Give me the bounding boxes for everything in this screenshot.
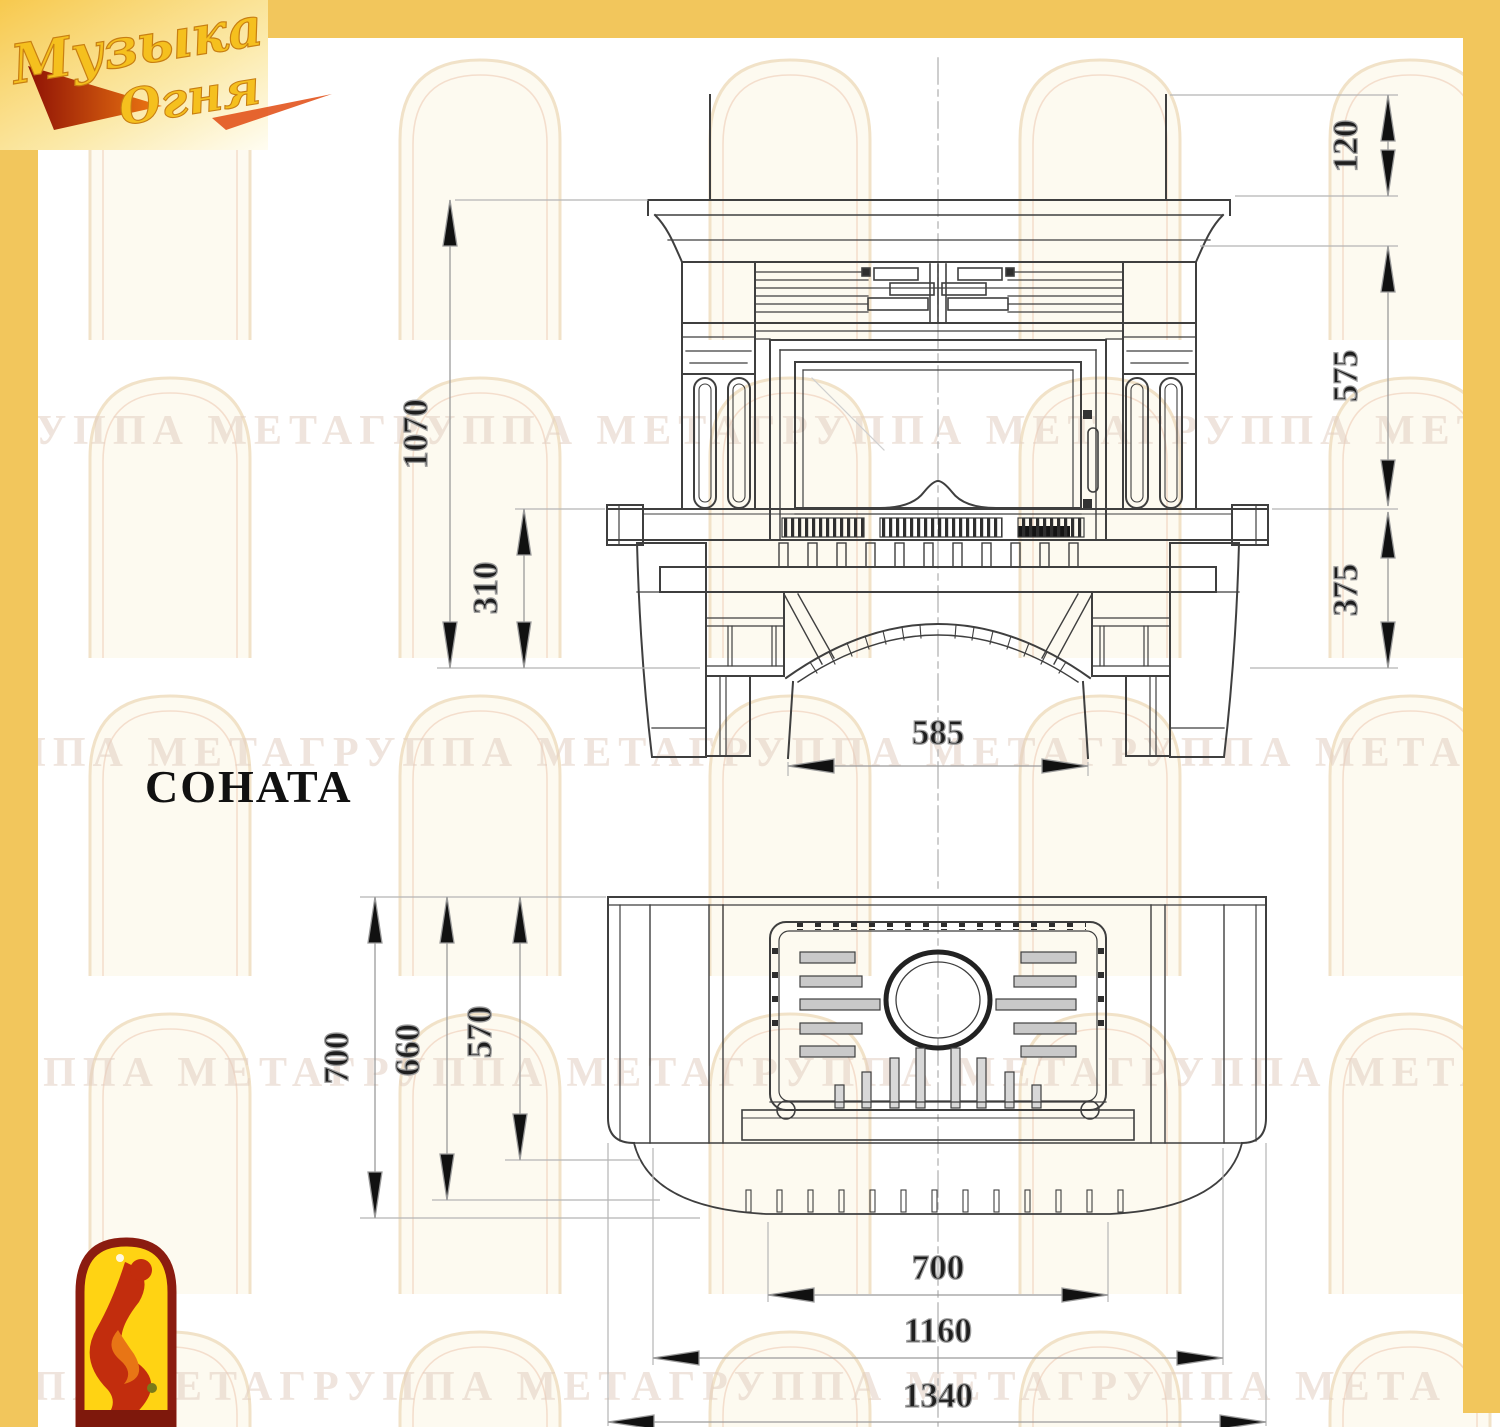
dim-label: 120: [1326, 120, 1365, 173]
dim-label: 575: [1326, 350, 1365, 403]
dim-label: 310: [466, 562, 505, 615]
dim-label: 700: [317, 1032, 356, 1085]
dim-label: 570: [460, 1006, 499, 1059]
door-hinge: [1083, 499, 1092, 508]
flame-head: [130, 1259, 152, 1281]
emblem-base: [76, 1410, 176, 1427]
flame-dot: [147, 1383, 157, 1393]
model-title: СОНАТА: [145, 761, 353, 812]
page: ГРУППА МЕТАГРУППА МЕТАГРУППА МЕТАГРУППА …: [0, 0, 1500, 1427]
dim-label: 1340: [903, 1376, 973, 1415]
base-wing-left: [637, 543, 706, 757]
dim-label: 1160: [904, 1311, 972, 1350]
dim-label: 375: [1326, 564, 1365, 617]
dim-label: 1070: [396, 399, 435, 469]
architrave-capitals: [682, 323, 1196, 374]
watermark-row: ГРУППА МЕТАГРУППА МЕТАГРУППА МЕТАГРУППА …: [0, 1364, 1447, 1410]
dim-label: 585: [912, 713, 965, 752]
dim-label: 700: [912, 1248, 965, 1287]
watermark-row: ГРУППА МЕТАГРУППА МЕТАГРУППА МЕТАГРУППА …: [0, 1050, 1497, 1096]
border-left: [0, 0, 38, 1427]
flame-emblem: [76, 1242, 176, 1427]
flame-dot: [116, 1254, 124, 1262]
dim-label: 660: [388, 1024, 427, 1077]
border-right: [1463, 0, 1500, 1413]
firebox-gasket-dots: [790, 923, 1086, 930]
air-grille: [782, 518, 1084, 537]
frieze-ornament: [862, 264, 1014, 323]
door-hinge: [1083, 410, 1092, 419]
